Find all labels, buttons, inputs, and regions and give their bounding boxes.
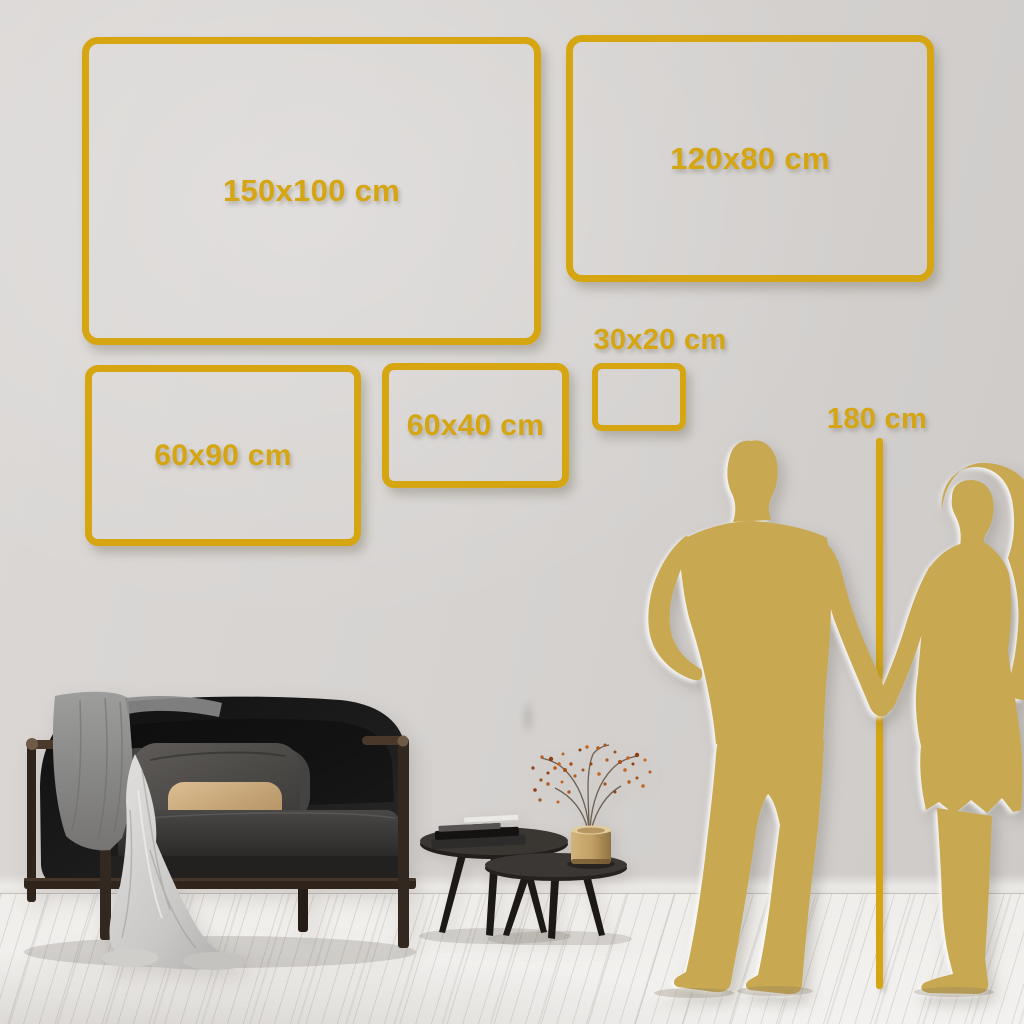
size-frame-120x80: 120x80 cm — [566, 35, 934, 282]
size-frame-30x20 — [592, 363, 686, 431]
size-label-120x80: 120x80 cm — [670, 141, 830, 177]
man-torso — [679, 521, 831, 748]
man-head — [727, 440, 777, 522]
size-label-30x20: 30x20 cm — [560, 324, 760, 357]
size-frame-150x100: 150x100 cm — [82, 37, 541, 345]
sofa-illustration — [10, 690, 430, 980]
size-frame-60x40: 60x40 cm — [382, 363, 569, 488]
couple-silhouette — [630, 436, 1024, 1006]
size-frame-60x90: 60x90 cm — [85, 365, 361, 546]
clasped-hands — [871, 692, 893, 710]
man-legs — [674, 738, 824, 994]
woman-leg — [921, 808, 992, 994]
size-label-60x90: 60x90 cm — [154, 439, 292, 473]
height-label: 180 cm — [777, 403, 977, 436]
size-label-60x40: 60x40 cm — [407, 409, 545, 443]
size-guide-scene: 150x100 cm 120x80 cm 60x90 cm 60x40 cm 3… — [0, 0, 1024, 1024]
woman-head — [952, 480, 994, 546]
size-label-150x100: 150x100 cm — [223, 173, 400, 209]
wall-smudge — [520, 698, 536, 736]
